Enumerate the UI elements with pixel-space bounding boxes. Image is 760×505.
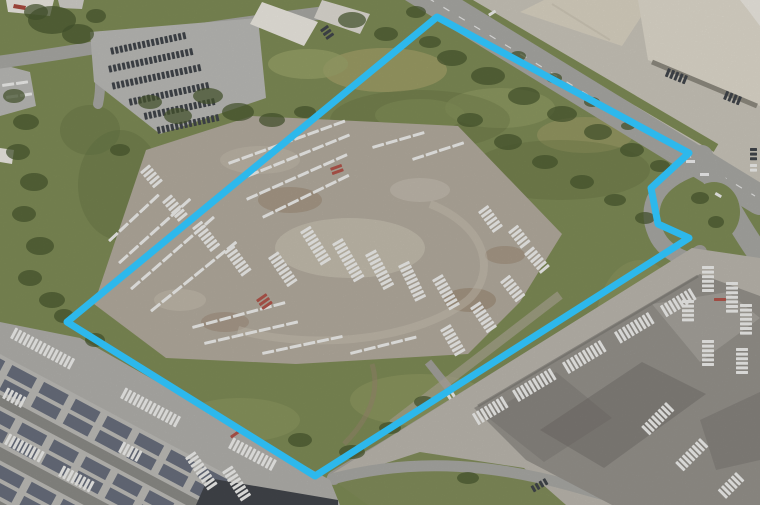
photo-grain-overlay <box>0 0 760 505</box>
aerial-map-image <box>0 0 760 505</box>
aerial-screenshot <box>0 0 760 505</box>
